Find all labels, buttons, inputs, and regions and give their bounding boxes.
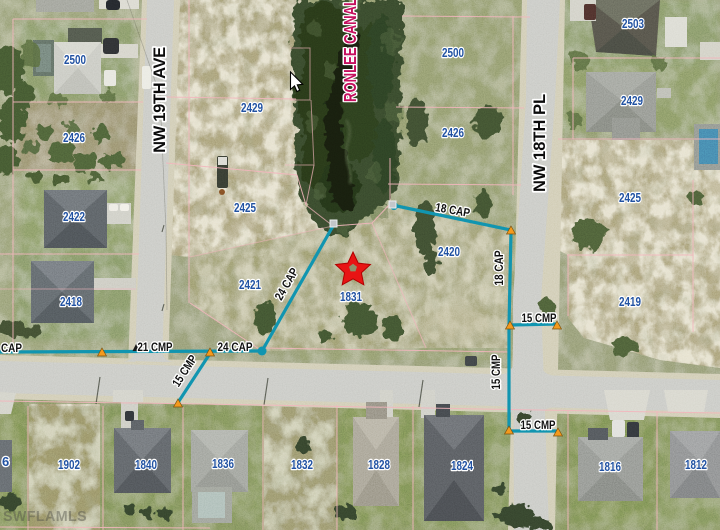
- svg-text:2422: 2422: [63, 209, 85, 224]
- svg-text:2426: 2426: [63, 130, 85, 145]
- svg-text:1824: 1824: [451, 458, 474, 473]
- svg-text:SWFLAMLS: SWFLAMLS: [3, 508, 87, 525]
- svg-text:2429: 2429: [621, 93, 643, 108]
- svg-text:15 CMP: 15 CMP: [521, 418, 556, 432]
- svg-text:6: 6: [2, 454, 9, 469]
- svg-text:1840: 1840: [135, 457, 157, 472]
- svg-text:2500: 2500: [64, 52, 86, 67]
- svg-text:18 CAP: 18 CAP: [492, 251, 506, 286]
- svg-text:2425: 2425: [234, 200, 256, 215]
- svg-text:1902: 1902: [58, 457, 80, 472]
- svg-text:2419: 2419: [619, 294, 641, 309]
- svg-text:2421: 2421: [239, 277, 261, 292]
- svg-text:1828: 1828: [368, 457, 390, 472]
- svg-text:RONLEE CANAL: RONLEE CANAL: [340, 0, 360, 102]
- svg-text:2426: 2426: [442, 125, 464, 140]
- svg-text:2418: 2418: [60, 294, 82, 309]
- svg-text:15 CMP: 15 CMP: [489, 355, 503, 390]
- svg-text:2500: 2500: [442, 45, 464, 60]
- svg-text:2420: 2420: [438, 244, 460, 259]
- svg-text:15 CMP: 15 CMP: [522, 311, 557, 325]
- svg-text:2503: 2503: [622, 16, 644, 31]
- svg-text:21 CMP: 21 CMP: [138, 340, 173, 354]
- svg-text:NW 19TH AVE: NW 19TH AVE: [151, 47, 169, 153]
- svg-text:1832: 1832: [291, 457, 313, 472]
- svg-text:NW 18TH PL: NW 18TH PL: [531, 94, 549, 192]
- svg-text:2425: 2425: [619, 190, 641, 205]
- svg-text:24 CAP: 24 CAP: [218, 340, 253, 354]
- svg-text:2429: 2429: [241, 100, 263, 115]
- svg-text:1816: 1816: [599, 459, 621, 474]
- svg-text:1812: 1812: [685, 457, 707, 472]
- svg-text:CAP: CAP: [1, 341, 22, 355]
- svg-text:1831: 1831: [340, 289, 362, 304]
- svg-text:1836: 1836: [212, 456, 234, 471]
